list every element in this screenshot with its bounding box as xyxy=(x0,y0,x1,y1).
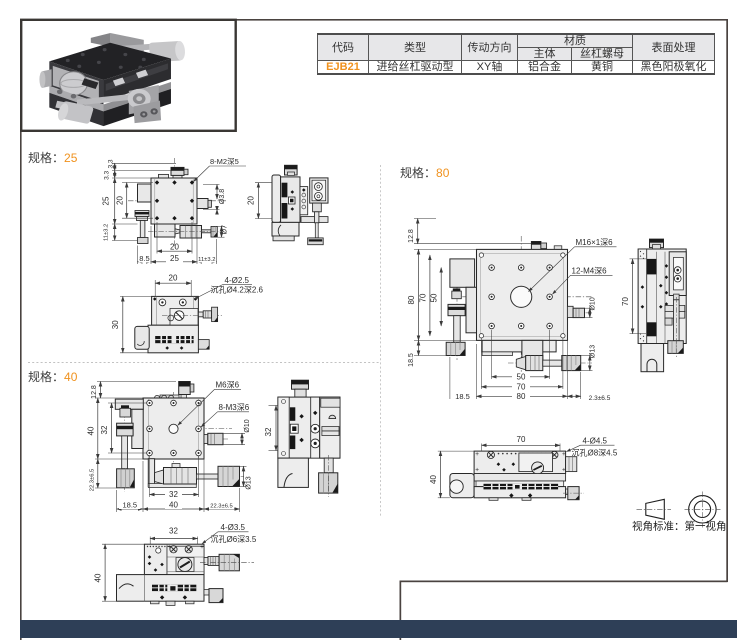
svg-text:2.3±6.5: 2.3±6.5 xyxy=(589,395,611,402)
svg-text:12-M4深6: 12-M4深6 xyxy=(572,267,608,276)
svg-text:20: 20 xyxy=(116,196,125,205)
svg-text:M6深6: M6深6 xyxy=(216,381,240,390)
svg-text:70: 70 xyxy=(517,435,526,444)
svg-text:50: 50 xyxy=(430,293,439,302)
svg-text:4-Ø4.5: 4-Ø4.5 xyxy=(583,436,608,445)
svg-text:Ø3.8: Ø3.8 xyxy=(219,189,226,204)
svg-text:8-M2深5: 8-M2深5 xyxy=(210,157,239,166)
svg-text:20: 20 xyxy=(169,274,178,283)
svg-text:M16×1深6: M16×1深6 xyxy=(576,238,614,247)
svg-text:40: 40 xyxy=(169,501,178,510)
svg-text:Ø10: Ø10 xyxy=(244,419,251,432)
svg-text:70: 70 xyxy=(418,293,427,302)
svg-text:11±3.2: 11±3.2 xyxy=(198,257,215,263)
svg-text:70: 70 xyxy=(517,383,526,392)
svg-text:30: 30 xyxy=(111,320,120,329)
svg-text:25: 25 xyxy=(170,254,179,263)
svg-text:沉孔Ø6深3.5: 沉孔Ø6深3.5 xyxy=(211,535,257,544)
svg-text:4-Ø2.5: 4-Ø2.5 xyxy=(225,276,250,285)
svg-text:20: 20 xyxy=(170,242,179,251)
svg-text:18.5: 18.5 xyxy=(122,501,137,510)
svg-text:32: 32 xyxy=(264,427,273,436)
svg-text:8-M3深6: 8-M3深6 xyxy=(219,403,250,412)
svg-text:50: 50 xyxy=(517,373,526,382)
svg-text:40: 40 xyxy=(429,475,438,484)
svg-text:3.3: 3.3 xyxy=(107,159,114,168)
svg-text:沉孔Ø8深4.5: 沉孔Ø8深4.5 xyxy=(572,448,618,457)
svg-text:80: 80 xyxy=(517,392,526,401)
svg-text:18.5: 18.5 xyxy=(408,353,415,367)
svg-text:32: 32 xyxy=(169,526,178,535)
svg-text:规格：80: 规格：80 xyxy=(400,165,450,180)
svg-text:8.5: 8.5 xyxy=(139,254,149,263)
svg-text:22.3±6.5: 22.3±6.5 xyxy=(210,503,233,509)
svg-text:32: 32 xyxy=(169,490,178,499)
svg-text:40: 40 xyxy=(93,573,102,582)
svg-text:Ø13: Ø13 xyxy=(246,476,253,489)
svg-text:Ø13: Ø13 xyxy=(590,345,597,358)
svg-text:20: 20 xyxy=(247,196,256,205)
svg-text:70: 70 xyxy=(621,297,630,306)
svg-text:视角标准：第一视角: 视角标准：第一视角 xyxy=(632,519,727,532)
svg-text:11±3.2: 11±3.2 xyxy=(104,224,110,241)
svg-text:Ø10: Ø10 xyxy=(590,297,597,310)
svg-text:22.3±6.5: 22.3±6.5 xyxy=(89,469,95,492)
svg-text:80: 80 xyxy=(407,295,416,304)
svg-text:规格：25: 规格：25 xyxy=(28,150,78,165)
svg-text:4-Ø3.5: 4-Ø3.5 xyxy=(221,523,246,532)
svg-text:12.8: 12.8 xyxy=(408,229,415,243)
svg-text:12.8: 12.8 xyxy=(91,385,98,399)
svg-text:18.5: 18.5 xyxy=(455,392,470,401)
svg-text:Ø7: Ø7 xyxy=(222,225,229,234)
svg-text:25: 25 xyxy=(102,196,111,205)
svg-text:32: 32 xyxy=(100,425,109,434)
svg-text:40: 40 xyxy=(86,426,95,435)
svg-text:3.3: 3.3 xyxy=(103,171,110,180)
svg-text:规格：40: 规格：40 xyxy=(28,369,78,384)
